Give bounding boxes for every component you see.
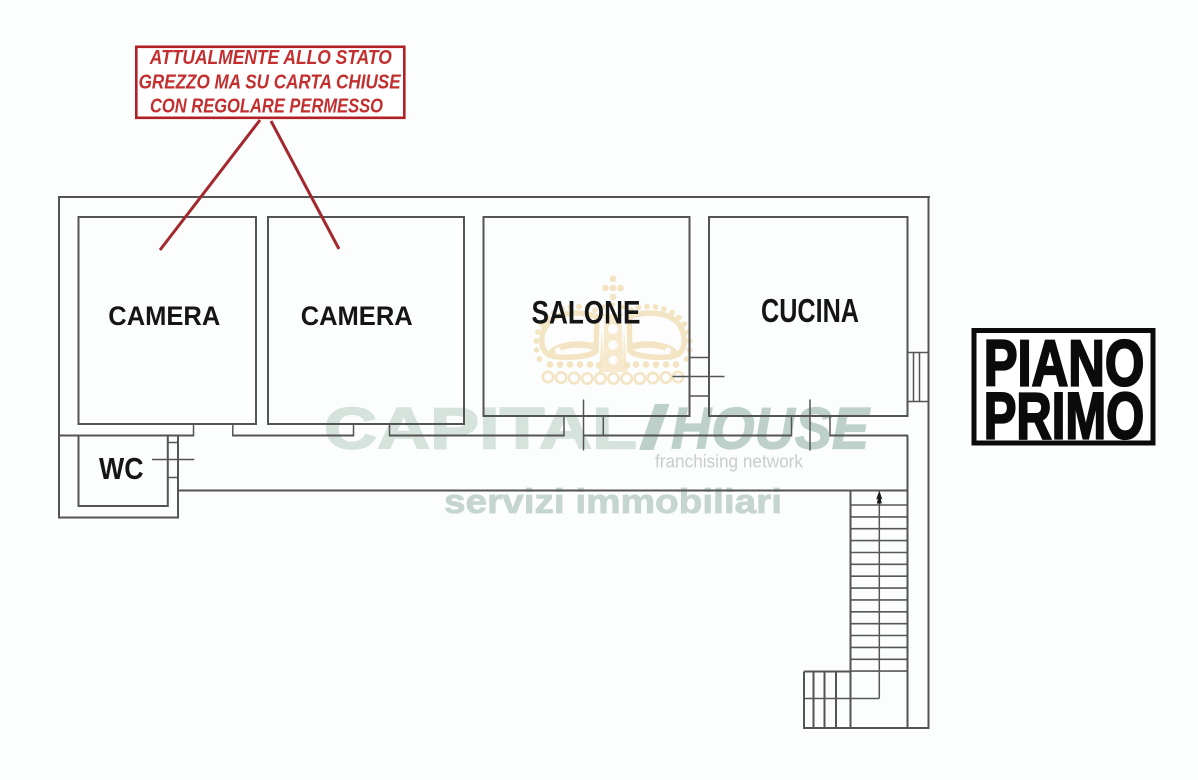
svg-text:servizi immobiliari: servizi immobiliari	[444, 483, 782, 521]
svg-text:PRIMO: PRIMO	[984, 379, 1145, 453]
svg-text:SALONE: SALONE	[532, 295, 641, 331]
svg-text:WC: WC	[99, 451, 144, 486]
svg-text:franchising network: franchising network	[655, 452, 804, 472]
svg-text:ATTUALMENTE ALLO STATO: ATTUALMENTE ALLO STATO	[149, 47, 392, 69]
svg-text:CAMERA: CAMERA	[301, 301, 413, 331]
svg-text:CAPITAL: CAPITAL	[324, 397, 637, 462]
svg-text:GREZZO MA SU CARTA CHIUSE: GREZZO MA SU CARTA CHIUSE	[139, 71, 402, 93]
svg-text:CUCINA: CUCINA	[761, 293, 859, 330]
svg-text:CAMERA: CAMERA	[108, 301, 220, 331]
svg-text:CON REGOLARE PERMESSO: CON REGOLARE PERMESSO	[150, 96, 383, 118]
